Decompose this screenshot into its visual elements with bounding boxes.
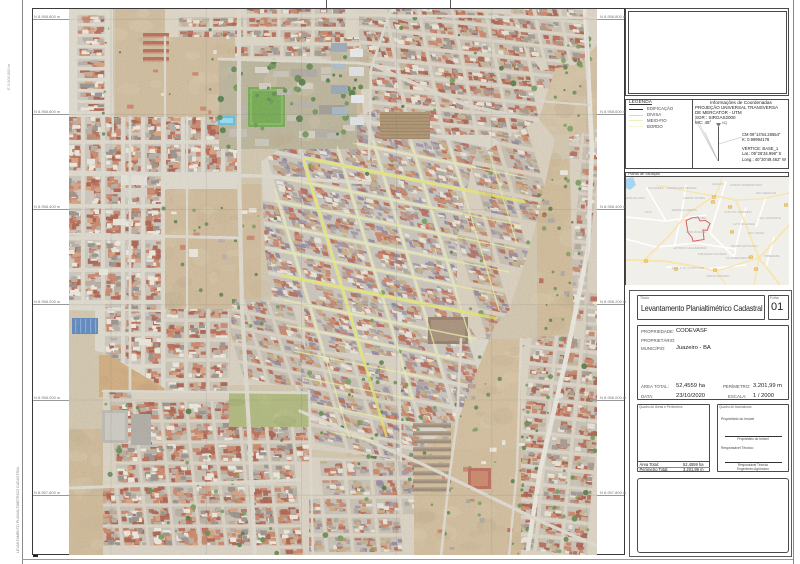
svg-text:TABULEIRO DA AREIA: TABULEIRO DA AREIA (697, 252, 726, 256)
svg-text:ALTO DA ALDEIA: ALTO DA ALDEIA (732, 222, 754, 226)
svg-text:MULATO: MULATO (712, 182, 724, 186)
svg-text:DOM VIVENTE: DOM VIVENTE (686, 230, 705, 234)
svg-text:NQ: NQ (722, 121, 728, 125)
svg-text:ALTO DO CRUZEIRO: ALTO DO CRUZEIRO (724, 210, 752, 214)
svg-text:ANTONIO GUILHERMINO: ANTONIO GUILHERMINO (673, 246, 707, 250)
svg-text:SOL NASCENTE: SOL NASCENTE (759, 216, 781, 220)
svg-text:SAO TOMAZ: SAO TOMAZ (747, 231, 764, 235)
svg-text:JARDIM SAO PAULO: JARDIM SAO PAULO (730, 244, 758, 248)
svg-text:BARRA DA LONA: BARRA DA LONA (626, 196, 645, 200)
svg-text:JARDIM VITORIA: JARDIM VITORIA (682, 196, 704, 200)
svg-text:JARDIM FLORESTA: JARDIM FLORESTA (671, 208, 697, 212)
svg-text:QUARANIBA: QUARANIBA (689, 216, 706, 220)
svg-text:PALMARES: PALMARES (648, 186, 663, 190)
svg-text:CAJA: CAJA (644, 210, 651, 214)
svg-text:JARDIM UNIVERSITARIO: JARDIM UNIVERSITARIO (729, 183, 763, 187)
svg-text:RAIZES DAS PEDRAS: RAIZES DAS PEDRAS (667, 186, 696, 190)
svg-text:VILA PRESIDENTE: VILA PRESIDENTE (725, 256, 750, 260)
svg-text:SAO GERALDO: SAO GERALDO (755, 191, 776, 195)
svg-text:SANTO ANTONIO: SANTO ANTONIO (706, 274, 730, 278)
svg-text:ITABERABA: ITABERABA (764, 254, 780, 258)
svg-text:DOM JOSE RODRIGUES: DOM JOSE RODRIGUES (671, 266, 703, 270)
